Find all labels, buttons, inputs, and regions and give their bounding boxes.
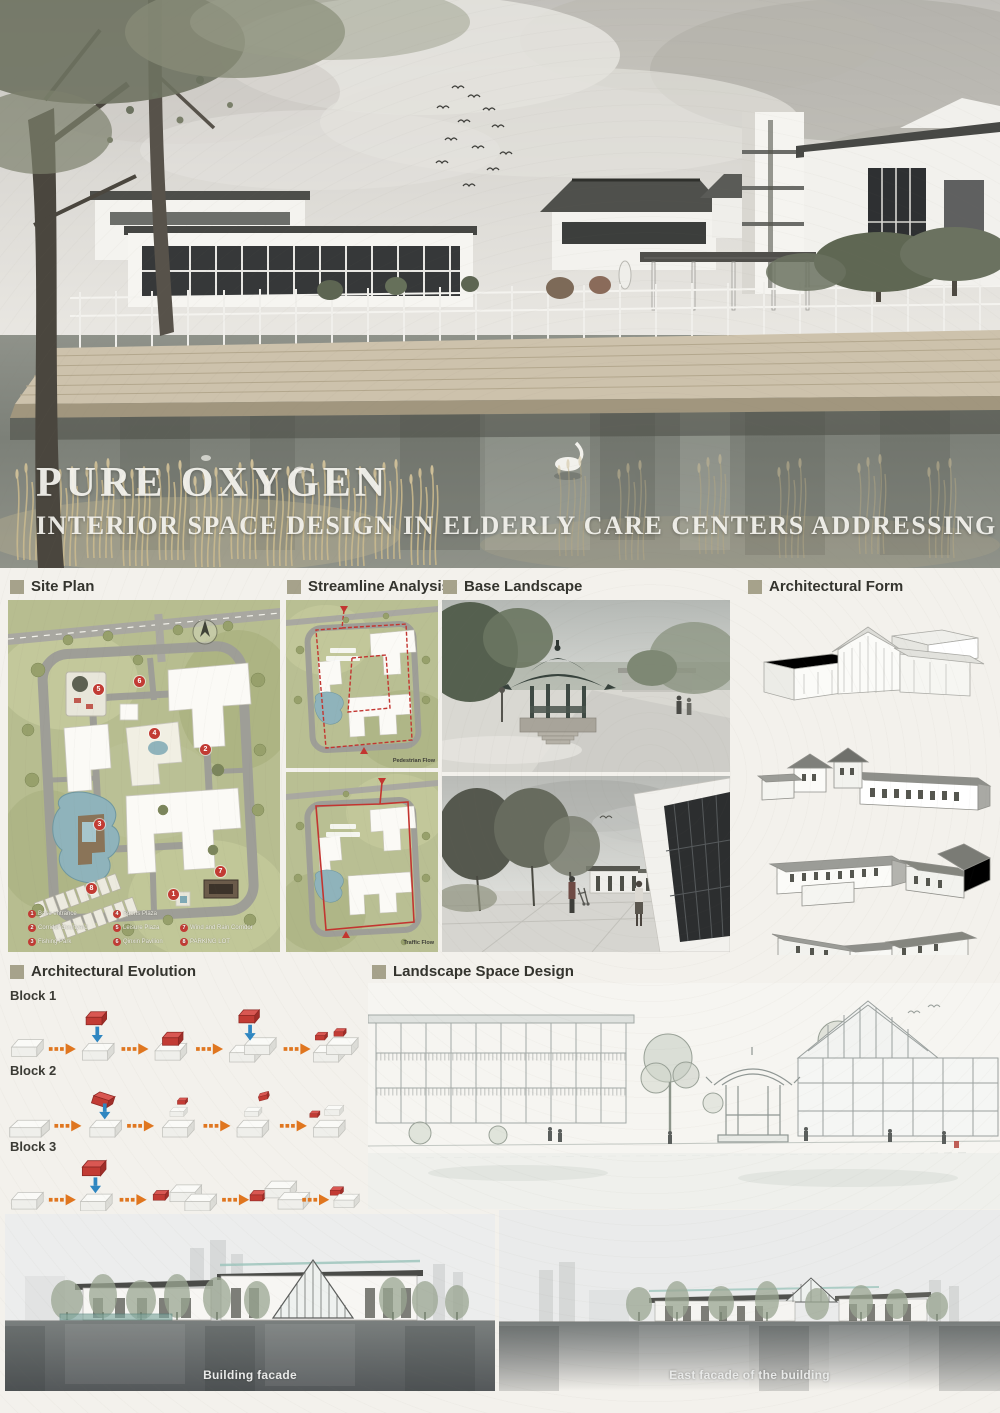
section-marker-icon [10, 580, 24, 594]
fishing-pond [53, 792, 120, 883]
east-facade-elevation: East facade of the building [499, 1210, 1000, 1391]
legend-num-badge: 4 [113, 910, 121, 918]
poster-subtitle: INTERIOR SPACE DESIGN IN ELDERLY CARE CE… [36, 511, 997, 541]
legend-item: 5 Leisure Plaza [113, 924, 159, 932]
streamline-map-traffic: Traffic Flow [286, 772, 438, 952]
legend-num-badge: 2 [28, 924, 36, 932]
section-title: Site Plan [31, 578, 94, 595]
site-plan-marker-6: 6 [134, 676, 145, 687]
section-marker-icon [10, 965, 24, 979]
site-plan-marker-1: 1 [168, 889, 179, 900]
section-title: Architectural Evolution [31, 963, 196, 980]
facade-drawing [5, 1214, 495, 1391]
axon-drawing-4 [742, 922, 1000, 955]
courtyard-scene [442, 776, 730, 952]
section-header-architectural-form: Architectural Form [748, 578, 903, 595]
section-header-architectural-evolution: Architectural Evolution [10, 963, 196, 980]
legend-label: Base entrance [38, 911, 77, 917]
landscape-space-sketch [368, 983, 1000, 1209]
legend-item: 2 Corridor Courtyard [28, 924, 88, 932]
architectural-evolution-diagram: Block 1 Block 2 [0, 983, 366, 1211]
hero-rendering: PURE OXYGEN INTERIOR SPACE DESIGN IN ELD… [0, 0, 1000, 568]
section-title: Architectural Form [769, 578, 903, 595]
legend-item: 3 Fishing Park [28, 938, 71, 946]
streamline-map-drawing [286, 772, 438, 952]
legend-label: PARKING LOT [190, 939, 230, 945]
site-plan-marker-2: 2 [200, 744, 211, 755]
legend-item: 1 Base entrance [28, 910, 77, 918]
legend-num-badge: 3 [28, 938, 36, 946]
streamline-map-drawing [286, 600, 438, 768]
legend-num-badge: 8 [180, 938, 188, 946]
legend-label: Fishing Park [38, 939, 71, 945]
courtyard-photo [442, 776, 730, 952]
legend-label: Leisure Plaza [123, 925, 159, 931]
site-plan-drawing [8, 600, 280, 952]
flow-label: Pedestrian Flow [393, 758, 435, 764]
legend-num-badge: 6 [113, 938, 121, 946]
elevation-caption: Building facade [5, 1368, 495, 1382]
evolution-row-3 [6, 1155, 360, 1211]
site-plan-marker-5: 5 [93, 684, 104, 695]
section-header-landscape-space-design: Landscape Space Design [372, 963, 574, 980]
section-marker-icon [748, 580, 762, 594]
section-marker-icon [372, 965, 386, 979]
site-plan-marker-4: 4 [149, 728, 160, 739]
axon-drawing-1 [742, 610, 1000, 718]
east-facade-drawing [499, 1210, 1000, 1391]
presentation-board: PURE OXYGEN INTERIOR SPACE DESIGN IN ELD… [0, 0, 1000, 1413]
legend-num-badge: 5 [113, 924, 121, 932]
legend-item: 8 PARKING LOT [180, 938, 230, 946]
legend-label: Sports Plaza [123, 911, 157, 917]
site-plan-marker-7: 7 [215, 866, 226, 877]
section-header-streamline-analysis: Streamline Analysis [287, 578, 450, 595]
legend-num-badge: 7 [180, 924, 188, 932]
landscape-sketch-scene [368, 983, 1000, 1209]
site-plan-map: 1 2 3 4 5 6 7 8 1 Base entrance 2 Corrid… [8, 600, 280, 952]
building-facade-elevation: Building facade [5, 1214, 495, 1391]
site-plan-marker-8: 8 [86, 883, 97, 894]
flow-label: Traffic Flow [403, 940, 434, 946]
legend-label: Wind and Rain Corridor [190, 925, 253, 931]
section-marker-icon [443, 580, 457, 594]
section-title: Streamline Analysis [308, 578, 450, 595]
pavilion-photo [442, 600, 730, 772]
streamline-map-pedestrian: Pedestrian Flow [286, 600, 438, 768]
poster-title: PURE OXYGEN [36, 459, 389, 507]
pool-strip [60, 1314, 172, 1320]
north-compass-icon [193, 620, 217, 644]
legend-label: Corridor Courtyard [38, 925, 88, 931]
legend-num-badge: 1 [28, 910, 36, 918]
legend-item: 6 Qinxin Pavilion [113, 938, 163, 946]
architectural-form-studies [742, 600, 1000, 955]
elevation-caption: East facade of the building [499, 1368, 1000, 1382]
legend-item: 4 Sports Plaza [113, 910, 157, 918]
section-marker-icon [287, 580, 301, 594]
legend-item: 7 Wind and Rain Corridor [180, 924, 253, 932]
section-header-base-landscape: Base Landscape [443, 578, 582, 595]
section-title: Base Landscape [464, 578, 582, 595]
pavilion-scene [442, 600, 730, 772]
axon-drawing-3 [742, 828, 1000, 916]
legend-label: Qinxin Pavilion [123, 939, 163, 945]
section-title: Landscape Space Design [393, 963, 574, 980]
section-header-site-plan: Site Plan [10, 578, 94, 595]
block-label: Block 2 [10, 1063, 56, 1078]
site-plan-marker-3: 3 [94, 819, 105, 830]
axon-drawing-2 [742, 722, 1000, 820]
evolution-row-1 [6, 1005, 360, 1065]
block-label: Block 1 [10, 988, 56, 1003]
block-label: Block 3 [10, 1139, 56, 1154]
wooden-deck [10, 330, 1000, 440]
evolution-row-2 [6, 1080, 360, 1140]
